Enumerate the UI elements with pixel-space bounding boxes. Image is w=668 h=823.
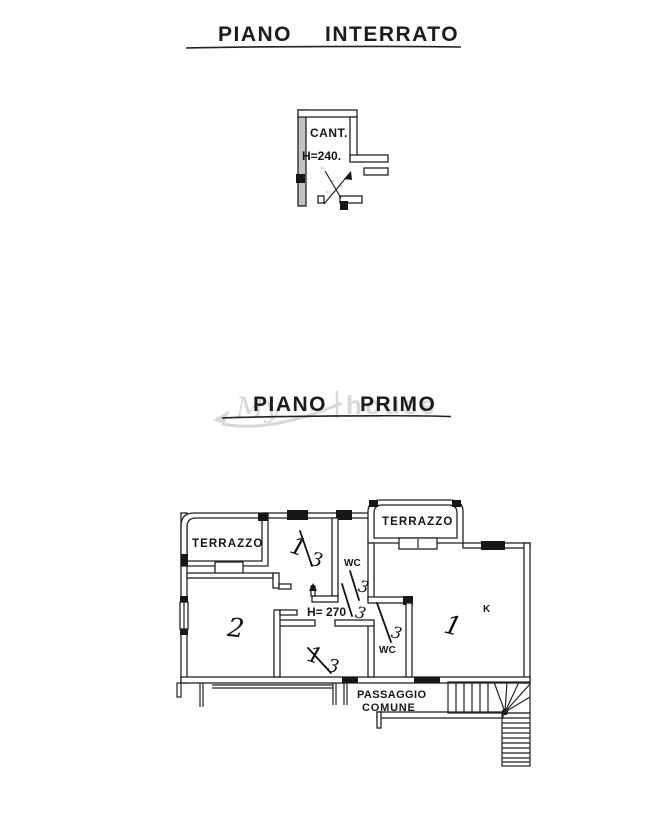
window-left-cap-bottom: [180, 629, 188, 635]
wc-upper-label: WC: [344, 558, 361, 569]
wall-room2-door-jamb-lower: [280, 610, 297, 615]
scan-speckle: [332, 180, 334, 182]
door-bottom-entry-1: [342, 677, 358, 683]
cellar-wall-step-lower: [364, 168, 388, 175]
fraction-lower-slash: [377, 603, 391, 642]
cellar-wall-step-upper: [350, 155, 388, 162]
fraction-bottom-numerator: 1: [304, 642, 325, 670]
wall-room2-top: [187, 573, 273, 578]
door-bottom-entry-2: [414, 677, 440, 683]
wall-room2-right-stub: [273, 573, 279, 588]
cellar-wall-junction-block: [296, 174, 305, 183]
walkway-stub-far-left: [177, 683, 181, 697]
terrace-left-corner-block-sw: [181, 554, 188, 566]
cellar-door-pivot-block: [340, 201, 348, 210]
wall-room2-right: [274, 610, 280, 677]
first-floor-title-word-2: PRIMO: [360, 393, 436, 416]
cellar-wall-bottom-left: [318, 196, 324, 203]
door-swing-arrow-head: [309, 583, 317, 591]
basement-section: PIANO INTERRATO CANT. H=240.: [186, 23, 461, 210]
floor-plan-document: PIANO INTERRATO CANT. H=240.: [0, 0, 668, 823]
wall-wc-lower-right: [406, 603, 412, 677]
terrace-left-corner-block-ne: [258, 513, 268, 521]
scan-speckle: [326, 191, 328, 193]
terrace-right-corner-block-ne: [452, 500, 461, 507]
terrace-right-label: TERRAZZO: [382, 516, 453, 528]
fraction-mid-a-slash: [350, 571, 359, 600]
watermark-logo-flag: [213, 410, 230, 424]
window-top-right: [481, 541, 505, 550]
terrace-right: TERRAZZO: [368, 500, 463, 549]
basement-title-word-1: PIANO: [218, 23, 292, 46]
outer-wall-top-middle: [263, 513, 373, 518]
wall-wc-lower-left: [368, 622, 374, 677]
wall-corridor-jamb: [312, 596, 338, 602]
window-left-wall: [180, 596, 188, 635]
wall-room2-door-jamb-upper: [279, 584, 291, 589]
window-top-1: [287, 510, 308, 520]
walkway-edge: [177, 683, 347, 707]
cellar-room-label: CANT.: [310, 126, 348, 140]
floor-plan-canvas: PIANO INTERRATO CANT. H=240.: [0, 0, 668, 823]
cellar-height-label: H=240.: [302, 149, 341, 163]
ceiling-height-label: H= 270: [307, 605, 346, 619]
first-floor-title-word-1: PIANO: [253, 393, 327, 416]
first-floor-section: My house PIANO PRIMO TERRAZZO: [177, 390, 530, 766]
fraction-bottom-denominator: 3: [326, 655, 341, 678]
stair-winder-line: [494, 682, 505, 712]
basement-title-underline: [186, 46, 461, 48]
terrace-right-corner-block-nw: [369, 500, 378, 507]
fraction-top-denominator: 3: [308, 548, 324, 572]
window-left-cap-top: [180, 596, 188, 602]
wall-bottom-room-top-a: [277, 620, 315, 626]
common-passage: PASSAGGIO COMUNE: [357, 689, 503, 728]
passage-label-line1: PASSAGGIO: [357, 689, 426, 701]
stair-newel-post: [502, 709, 508, 715]
wc-lower-label: WC: [379, 645, 396, 656]
passage-label-line2: COMUNE: [362, 702, 416, 714]
outer-wall-right: [524, 543, 530, 683]
basement-plan: CANT. H=240.: [296, 110, 388, 210]
terrace-left: TERRAZZO: [181, 513, 268, 575]
stair-winder-line: [505, 684, 530, 712]
scan-speckle: [340, 185, 342, 187]
cellar-wall-top: [298, 110, 357, 117]
handwritten-room2-number: 2: [225, 613, 246, 645]
first-floor-plan: TERRAZZO TERRAZZO: [177, 500, 530, 766]
basement-title-word-2: INTERRATO: [325, 23, 459, 46]
fraction-lower-denominator: 3: [389, 622, 403, 643]
handwritten-room1-number: 1: [441, 610, 464, 643]
kitchen-label: K: [483, 604, 491, 615]
wall-wc-strip-right: [368, 543, 374, 600]
staircase: [448, 682, 530, 766]
scan-speckle: [321, 167, 323, 169]
wall-room-top-right: [332, 518, 338, 596]
cellar-door-arrow-head: [344, 171, 352, 180]
terrace-left-label: TERRAZZO: [192, 538, 263, 550]
passage-wall-stub: [377, 712, 381, 728]
